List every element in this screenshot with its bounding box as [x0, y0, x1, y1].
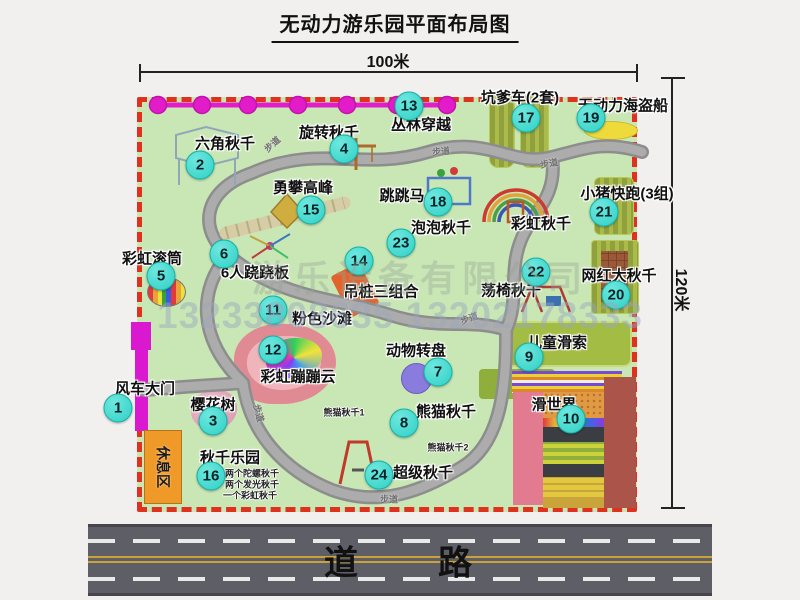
attraction-badge-15[interactable]: 15: [297, 196, 326, 225]
attraction-badge-19[interactable]: 19: [577, 104, 606, 133]
attraction-badge-6[interactable]: 6: [210, 240, 239, 269]
attraction-label-24: 超级秋千: [393, 462, 453, 483]
attraction-note-0: 熊猫秋千1: [323, 406, 364, 419]
attraction-label-23: 泡泡秋千: [411, 217, 471, 238]
attraction-badge-5[interactable]: 5: [147, 262, 176, 291]
attraction-note-4: 一个彩虹秋千: [223, 489, 277, 502]
marker-layer: 风车大门1六角秋千2樱花树3旋转秋千4彩虹滚筒56人跷跷板6动物转盘7熊猫秋千8…: [0, 0, 800, 600]
walkway-label-2: 步道: [539, 155, 559, 171]
walkway-label-5: 步道: [380, 493, 398, 506]
attraction-badge-24[interactable]: 24: [365, 461, 394, 490]
attraction-badge-3[interactable]: 3: [199, 407, 228, 436]
attraction-badge-1[interactable]: 1: [104, 394, 133, 423]
attraction-label-8: 熊猫秋千: [416, 401, 476, 422]
attraction-label-11: 粉色沙滩: [292, 308, 352, 329]
attraction-badge-8[interactable]: 8: [390, 409, 419, 438]
attraction-badge-11[interactable]: 11: [259, 296, 288, 325]
attraction-label-12: 彩虹蹦蹦云: [260, 366, 335, 387]
walkway-label-0: 步道: [261, 133, 283, 155]
attraction-badge-13[interactable]: 13: [395, 92, 424, 121]
attraction-label-15: 勇攀高峰: [273, 177, 333, 198]
attraction-label-14: 吊桩三组合: [343, 281, 418, 302]
attraction-badge-18[interactable]: 18: [424, 188, 453, 217]
attraction-badge-4[interactable]: 4: [330, 135, 359, 164]
attraction-badge-20[interactable]: 20: [602, 281, 631, 310]
attraction-label-18: 跳跳马: [379, 185, 424, 206]
attraction-badge-12[interactable]: 12: [259, 336, 288, 365]
attraction-badge-10[interactable]: 10: [557, 405, 586, 434]
attraction-badge-23[interactable]: 23: [387, 229, 416, 258]
attraction-badge-7[interactable]: 7: [424, 358, 453, 387]
attraction-badge-9[interactable]: 9: [515, 343, 544, 372]
attraction-badge-16[interactable]: 16: [197, 462, 226, 491]
attraction-badge-17[interactable]: 17: [512, 104, 541, 133]
walkway-label-1: 步道: [431, 144, 450, 159]
attraction-label-彩虹秋千: 彩虹秋千: [511, 213, 571, 234]
walkway-label-4: 步道: [250, 403, 267, 424]
attraction-badge-21[interactable]: 21: [590, 198, 619, 227]
attraction-badge-2[interactable]: 2: [186, 151, 215, 180]
walkway-label-3: 步道: [458, 309, 479, 327]
attraction-badge-22[interactable]: 22: [522, 258, 551, 287]
attraction-note-1: 熊猫秋千2: [427, 441, 468, 454]
attraction-badge-14[interactable]: 14: [345, 247, 374, 276]
